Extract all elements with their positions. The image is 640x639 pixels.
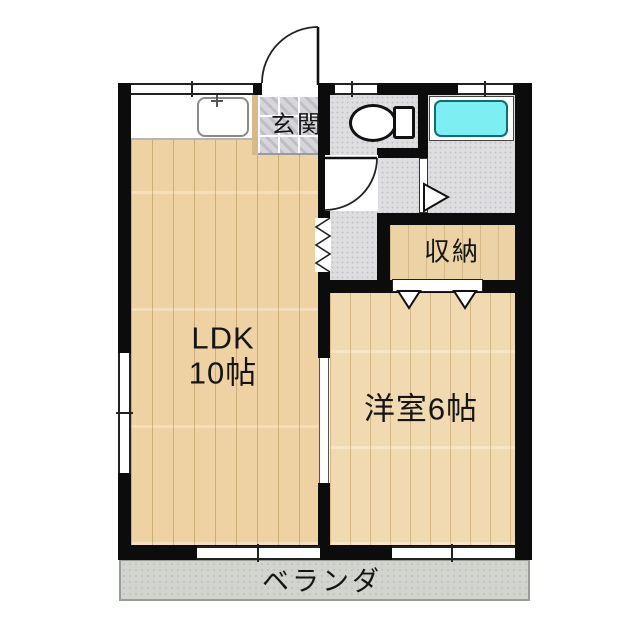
window-tick (484, 81, 486, 97)
folding-door-icon (315, 218, 331, 272)
ldk-label-line2: 10帖 (189, 356, 257, 391)
ldk-label-line1: LDK (189, 321, 257, 356)
entrance-door-swing-icon (250, 18, 332, 90)
toilet-icon (349, 104, 397, 142)
veranda-label: ベランダ (262, 560, 382, 599)
toilet-window (335, 83, 377, 95)
genkan-threshold (252, 95, 258, 155)
wall-toilet-bath-divider (418, 93, 428, 158)
window-tick (257, 544, 259, 562)
kitchen-sink-icon (197, 97, 249, 137)
wall-center-mid (318, 272, 330, 358)
bathtub-icon (434, 100, 508, 137)
window-tick (451, 544, 453, 562)
wall-top-corner-right (513, 83, 532, 95)
genkan-label: 玄関 (271, 105, 323, 140)
western-veranda-window (392, 546, 515, 560)
toilet-door-swing-icon (324, 154, 382, 214)
window-tick (191, 81, 193, 97)
wall-closet-top (377, 213, 515, 225)
sliding-door-opening (319, 358, 329, 483)
window-tick (351, 81, 353, 97)
bifold-closet-door-triangles (392, 290, 483, 311)
wall-center-lower (318, 483, 330, 545)
window-tick (116, 412, 133, 414)
western-room-label: 洋室6帖 (364, 393, 478, 428)
closet-label: 収納 (424, 232, 480, 269)
wall-left (118, 83, 131, 560)
toilet-tank-icon (393, 106, 415, 139)
faucet-icon (211, 100, 223, 102)
ldk-label: LDK 10帖 (189, 321, 257, 390)
bath-door-triangle-icon (423, 183, 451, 213)
floor-plan: 玄関 LDK 10帖 洋室6帖 収納 ベランダ (0, 0, 640, 639)
wall-toilet-bottom (377, 148, 418, 158)
wall-right (515, 83, 532, 560)
